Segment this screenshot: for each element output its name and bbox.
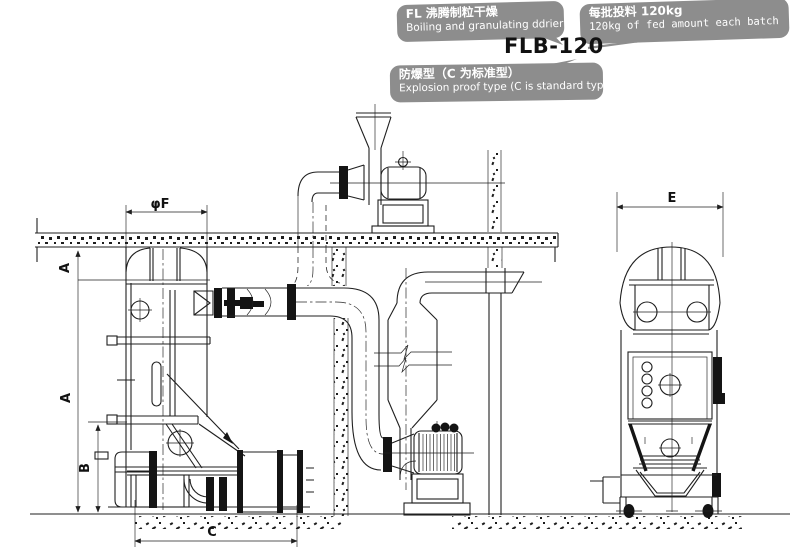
dim-label-C: C bbox=[207, 525, 217, 540]
dim-label-B: B bbox=[78, 463, 93, 473]
dim-label-E: E bbox=[668, 191, 677, 206]
flange bbox=[149, 451, 157, 508]
dim-label-phiF: φF bbox=[150, 197, 169, 212]
control-button bbox=[642, 398, 652, 408]
fan-base bbox=[372, 226, 434, 233]
dim-label-A-upper: A bbox=[58, 263, 73, 273]
blower-base bbox=[404, 503, 470, 515]
spray-gun-lance bbox=[224, 300, 240, 306]
discharge-stub bbox=[590, 477, 620, 503]
spray-gun-duct bbox=[194, 284, 383, 470]
flange bbox=[339, 166, 348, 199]
cyclone-separator bbox=[374, 268, 542, 490]
model-label: FLB-120 bbox=[504, 34, 604, 58]
handle bbox=[152, 362, 161, 406]
air-plenum bbox=[131, 475, 189, 507]
dim-label-A-lower: A bbox=[59, 393, 74, 403]
control-button bbox=[642, 386, 652, 396]
control-button bbox=[642, 362, 652, 372]
callout-explosion-en: Explosion proof type (C is standard type… bbox=[399, 79, 595, 94]
flange bbox=[206, 477, 214, 511]
ground bbox=[30, 514, 790, 529]
bolt-icon bbox=[432, 424, 441, 433]
inlet-duct-diagonal bbox=[167, 374, 245, 456]
flange bbox=[383, 437, 392, 472]
bowl-cart bbox=[115, 452, 150, 507]
flange bbox=[214, 288, 222, 318]
control-button bbox=[642, 374, 652, 384]
drain-stub bbox=[95, 452, 108, 459]
flange bbox=[219, 477, 227, 511]
callout-explosion-proof: 防爆型（C 为标准型） Explosion proof type (C is s… bbox=[390, 63, 603, 103]
exhaust-fan-unit bbox=[287, 104, 505, 289]
hinge bbox=[713, 357, 722, 395]
blower-unit bbox=[383, 421, 474, 515]
side-view-machine bbox=[590, 242, 725, 518]
heater-box bbox=[184, 450, 314, 513]
callout-batch-amount: 每批投料 120kg 120kg of fed amount each batc… bbox=[579, 0, 789, 44]
support-column bbox=[486, 268, 505, 515]
flange bbox=[287, 284, 296, 320]
ceiling-slab bbox=[35, 218, 558, 262]
technical-drawing: φF A A B C E FL 沸腾制粒干燥 Boiling and granu… bbox=[0, 0, 800, 554]
